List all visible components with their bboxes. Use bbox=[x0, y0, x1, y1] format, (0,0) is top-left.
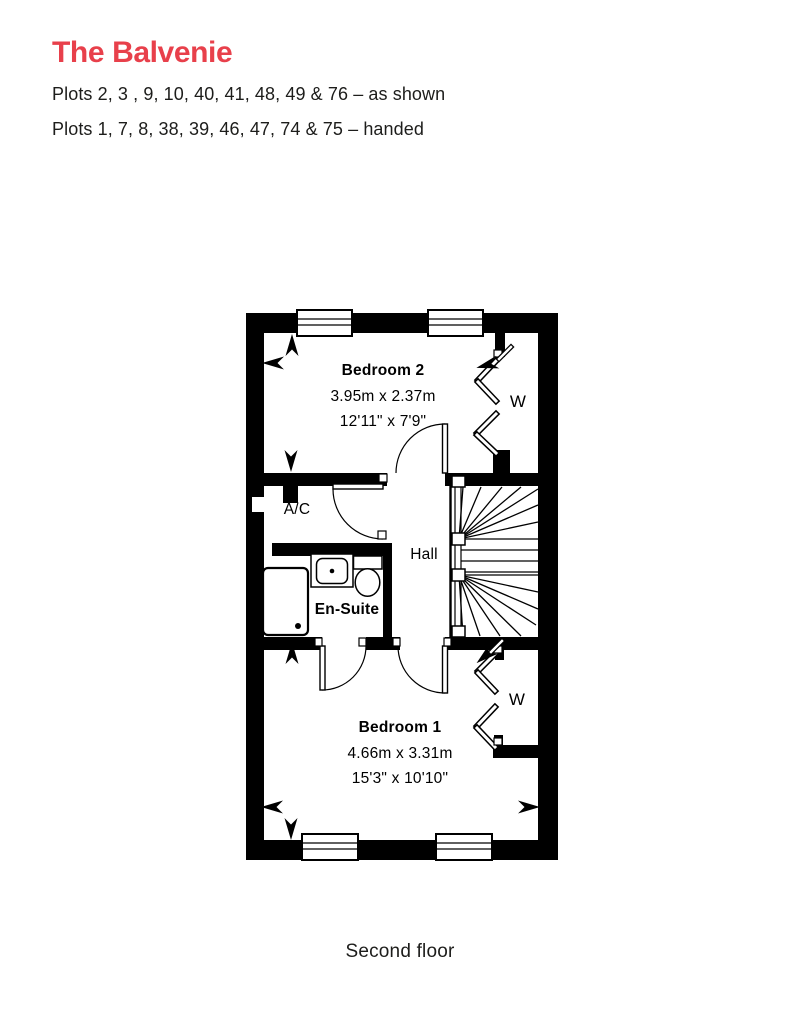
sink bbox=[311, 554, 353, 587]
wardrobe1-label: W bbox=[509, 690, 525, 710]
wall-bottom bbox=[246, 840, 558, 860]
shower-tray bbox=[263, 568, 308, 635]
floor-plan-drawing bbox=[0, 0, 800, 1036]
bedroom2-metric-dimensions: 3.95m x 2.37m bbox=[330, 388, 435, 406]
ensuite-door-leaf bbox=[320, 646, 325, 690]
stairs-treads bbox=[461, 539, 538, 572]
stairs-newel-posts bbox=[452, 476, 465, 637]
ac-door-leaf bbox=[333, 484, 383, 489]
window-bottom-left bbox=[302, 834, 358, 860]
arrow-up-bedroom2 bbox=[286, 334, 299, 356]
bedroom1-label: Bedroom 1 bbox=[359, 719, 442, 737]
bedroom1-imperial-dimensions: 15'3" x 10'10" bbox=[352, 770, 448, 788]
ensuite-door-arc bbox=[322, 646, 366, 690]
wardrobe2-bifold-bottom bbox=[477, 414, 496, 453]
ensuite-label: En-Suite bbox=[315, 601, 379, 619]
bedroom2-label: Bedroom 2 bbox=[342, 362, 425, 380]
wall-left bbox=[246, 313, 264, 860]
floor-caption: Second floor bbox=[345, 941, 454, 963]
arrow-left-bedroom1 bbox=[261, 801, 283, 814]
window-bottom-right bbox=[436, 834, 492, 860]
arrow-down-bedroom2 bbox=[285, 450, 298, 472]
wardrobe2-label: W bbox=[510, 392, 526, 412]
wall-top bbox=[246, 313, 558, 333]
stairs-lower-winders bbox=[459, 575, 538, 636]
window-top-right bbox=[428, 310, 483, 336]
arrow-down-bedroom1 bbox=[285, 818, 298, 840]
bedroom1-metric-dimensions: 4.66m x 3.31m bbox=[347, 745, 452, 763]
ensuite-fixtures bbox=[263, 554, 382, 635]
bedroom1-door-leaf bbox=[443, 646, 448, 693]
bedroom2-door-leaf bbox=[443, 424, 448, 473]
party-wall-notch bbox=[252, 497, 264, 512]
wall-right bbox=[538, 313, 558, 860]
ac-door-arc bbox=[333, 489, 383, 539]
arrow-right-bedroom1 bbox=[518, 801, 540, 814]
bedroom2-door-arc bbox=[396, 424, 445, 473]
shower-drain bbox=[295, 623, 301, 629]
wall-ensuite-right bbox=[383, 543, 392, 644]
wardrobe1-bifold-bottom bbox=[477, 707, 495, 747]
wardrobe1-bottom-wall bbox=[493, 745, 558, 758]
wardrobe-bifold-doors bbox=[477, 360, 497, 747]
toilet bbox=[354, 556, 383, 596]
arrow-left-bedroom2 bbox=[262, 357, 284, 370]
stairs-upper-winders bbox=[459, 487, 538, 539]
sink-tap bbox=[330, 569, 335, 574]
bedroom1-door-arc bbox=[398, 646, 445, 693]
staircase bbox=[451, 476, 539, 637]
stairs-railing bbox=[455, 486, 461, 637]
hall-label: Hall bbox=[410, 546, 438, 564]
bedroom2-imperial-dimensions: 12'11" x 7'9" bbox=[340, 413, 426, 431]
window-top-left bbox=[297, 310, 352, 336]
ac-cupboard-label: A/C bbox=[284, 501, 310, 519]
